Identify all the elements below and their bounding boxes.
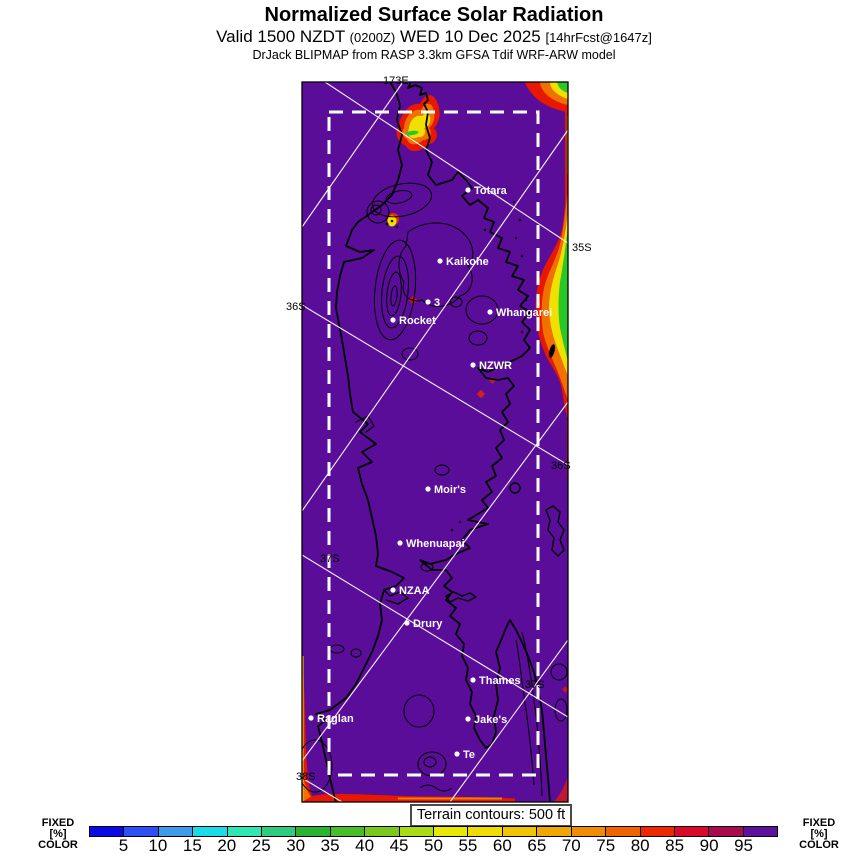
page: Normalized Surface Solar Radiation Valid… (0, 0, 850, 860)
graticule-label: 173E (383, 75, 409, 87)
colorbar-tick: 55 (458, 836, 477, 856)
colorbar-tick: 30 (286, 836, 305, 856)
station-dot (390, 317, 395, 322)
colorbar-tick: 50 (424, 836, 443, 856)
station-label: NZAA (399, 585, 430, 597)
station-dot (454, 751, 459, 756)
station-label: Totara (474, 185, 508, 197)
colorbar-ticks: 5101520253035404550556065707580859095 (89, 836, 778, 858)
station-label: Drury (413, 618, 443, 630)
station-label: Raglan (317, 713, 354, 725)
station-label: Te (463, 749, 475, 761)
station-label: Whangarei (496, 307, 552, 319)
colorbar-tick: 75 (596, 836, 615, 856)
station-dot (470, 677, 475, 682)
colorbar-tick: 40 (355, 836, 374, 856)
colorbar-tick: 70 (562, 836, 581, 856)
station-label: Whenuapai (406, 538, 465, 550)
station-dot (425, 299, 430, 304)
station-label: Rocket (399, 315, 436, 327)
graticule-label: 35S (572, 242, 592, 254)
station-label: Jake's (474, 714, 507, 726)
page-title: Normalized Surface Solar Radiation (0, 3, 850, 27)
station-dot (465, 716, 470, 721)
forecast-tag: [14hrFcst@1647z] (545, 30, 651, 45)
station-dot (437, 258, 442, 263)
header: Normalized Surface Solar Radiation Valid… (0, 3, 850, 63)
colorbar-tick: 15 (183, 836, 202, 856)
colorbar-tick: 90 (700, 836, 719, 856)
colorbar-tick: 85 (665, 836, 684, 856)
graticule-label: 37S (320, 553, 340, 565)
zulu-time: (0200Z) (350, 30, 396, 45)
colorbar-units-label-right: FIXED [%] COLOR (788, 818, 850, 851)
colorbar-units-label-left: FIXED [%] COLOR (27, 818, 89, 851)
station-dot (397, 540, 402, 545)
colorbar-tick: 10 (148, 836, 167, 856)
valid-time-line: Valid 1500 NZDT (0200Z) WED 10 Dec 2025 … (0, 27, 850, 48)
model-line: DrJack BLIPMAP from RASP 3.3km GFSA Tdif… (0, 48, 850, 63)
map-svg: TotaraKaikohe3WhangareiRocketNZWRMoir'sW… (270, 70, 610, 810)
colorbar-tick: 95 (734, 836, 753, 856)
colorbar-tick: 35 (321, 836, 340, 856)
station-label: Moir's (434, 484, 466, 496)
colorbar-tick: 60 (493, 836, 512, 856)
colorbar-tick: 80 (631, 836, 650, 856)
terrain-note-text: Terrain contours: 500 ft (417, 807, 565, 823)
station-dot (465, 187, 470, 192)
station-dot (308, 715, 313, 720)
station-label: Kaikohe (446, 256, 489, 268)
station-dot (390, 587, 395, 592)
graticule-label: 38S (296, 771, 316, 783)
colorbar-tick: 5 (119, 836, 128, 856)
colorbar-tick: 20 (217, 836, 236, 856)
colorbar-tick: 65 (527, 836, 546, 856)
colorbar-tick: 25 (252, 836, 271, 856)
station-dot (487, 309, 492, 314)
station-label: NZWR (479, 360, 512, 372)
colorbar-tick: 45 (390, 836, 409, 856)
graticule-label: 37S (525, 679, 545, 691)
station-label: 3 (434, 297, 440, 309)
terrain-note-box: Terrain contours: 500 ft (410, 804, 572, 827)
station-dot (470, 362, 475, 367)
station-dot (404, 620, 409, 625)
station-label: Thames (479, 675, 521, 687)
station-dot (425, 486, 430, 491)
